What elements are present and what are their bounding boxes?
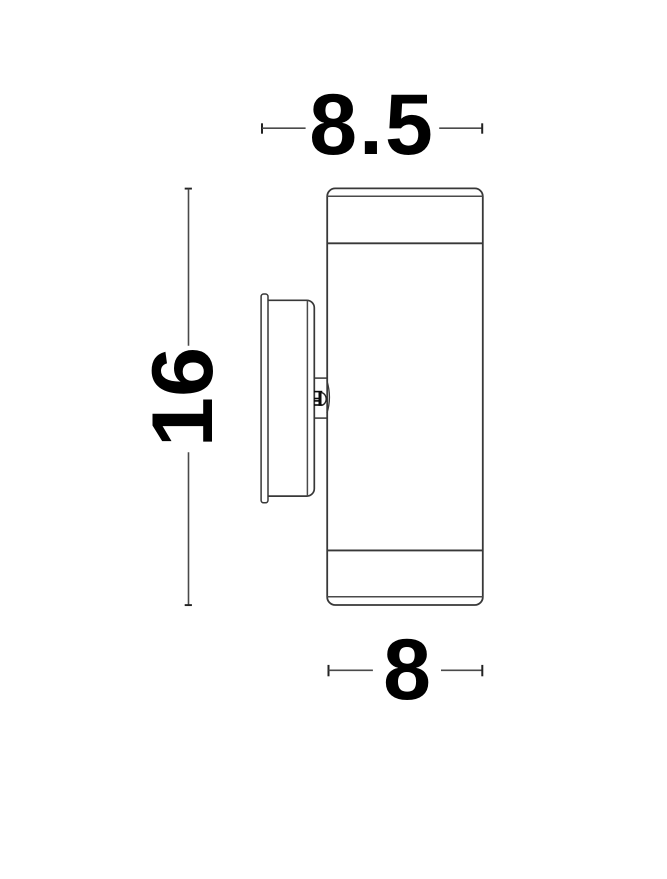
svg-text:8.5: 8.5 (309, 77, 435, 173)
svg-text:8: 8 (383, 622, 431, 718)
svg-text:16: 16 (134, 347, 231, 447)
